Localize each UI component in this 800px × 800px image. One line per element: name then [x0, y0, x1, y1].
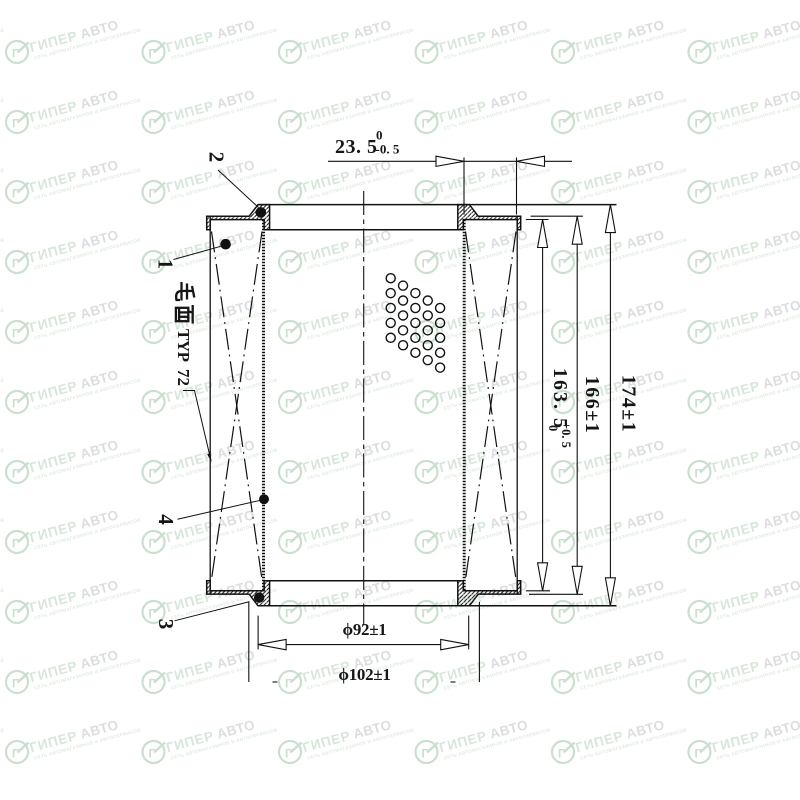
svg-text:163. 5: 163. 5 — [549, 368, 571, 430]
svg-text:ϕ102±1: ϕ102±1 — [338, 665, 390, 684]
svg-text:166±1: 166±1 — [581, 376, 603, 434]
svg-text:TYP: TYP — [174, 329, 193, 362]
svg-text:ϕ92±1: ϕ92±1 — [343, 620, 387, 639]
svg-text:4: 4 — [154, 514, 178, 525]
svg-text:-0. 5: -0. 5 — [376, 142, 400, 157]
svg-text:1: 1 — [154, 259, 178, 270]
svg-text:72: 72 — [174, 369, 193, 386]
svg-text:0: 0 — [376, 128, 383, 143]
svg-text:23. 5: 23. 5 — [335, 136, 378, 158]
svg-text:+0. 5: +0. 5 — [559, 422, 573, 448]
svg-text:2: 2 — [205, 152, 229, 163]
svg-text:0: 0 — [546, 425, 560, 431]
svg-text:174±1: 174±1 — [618, 375, 640, 433]
